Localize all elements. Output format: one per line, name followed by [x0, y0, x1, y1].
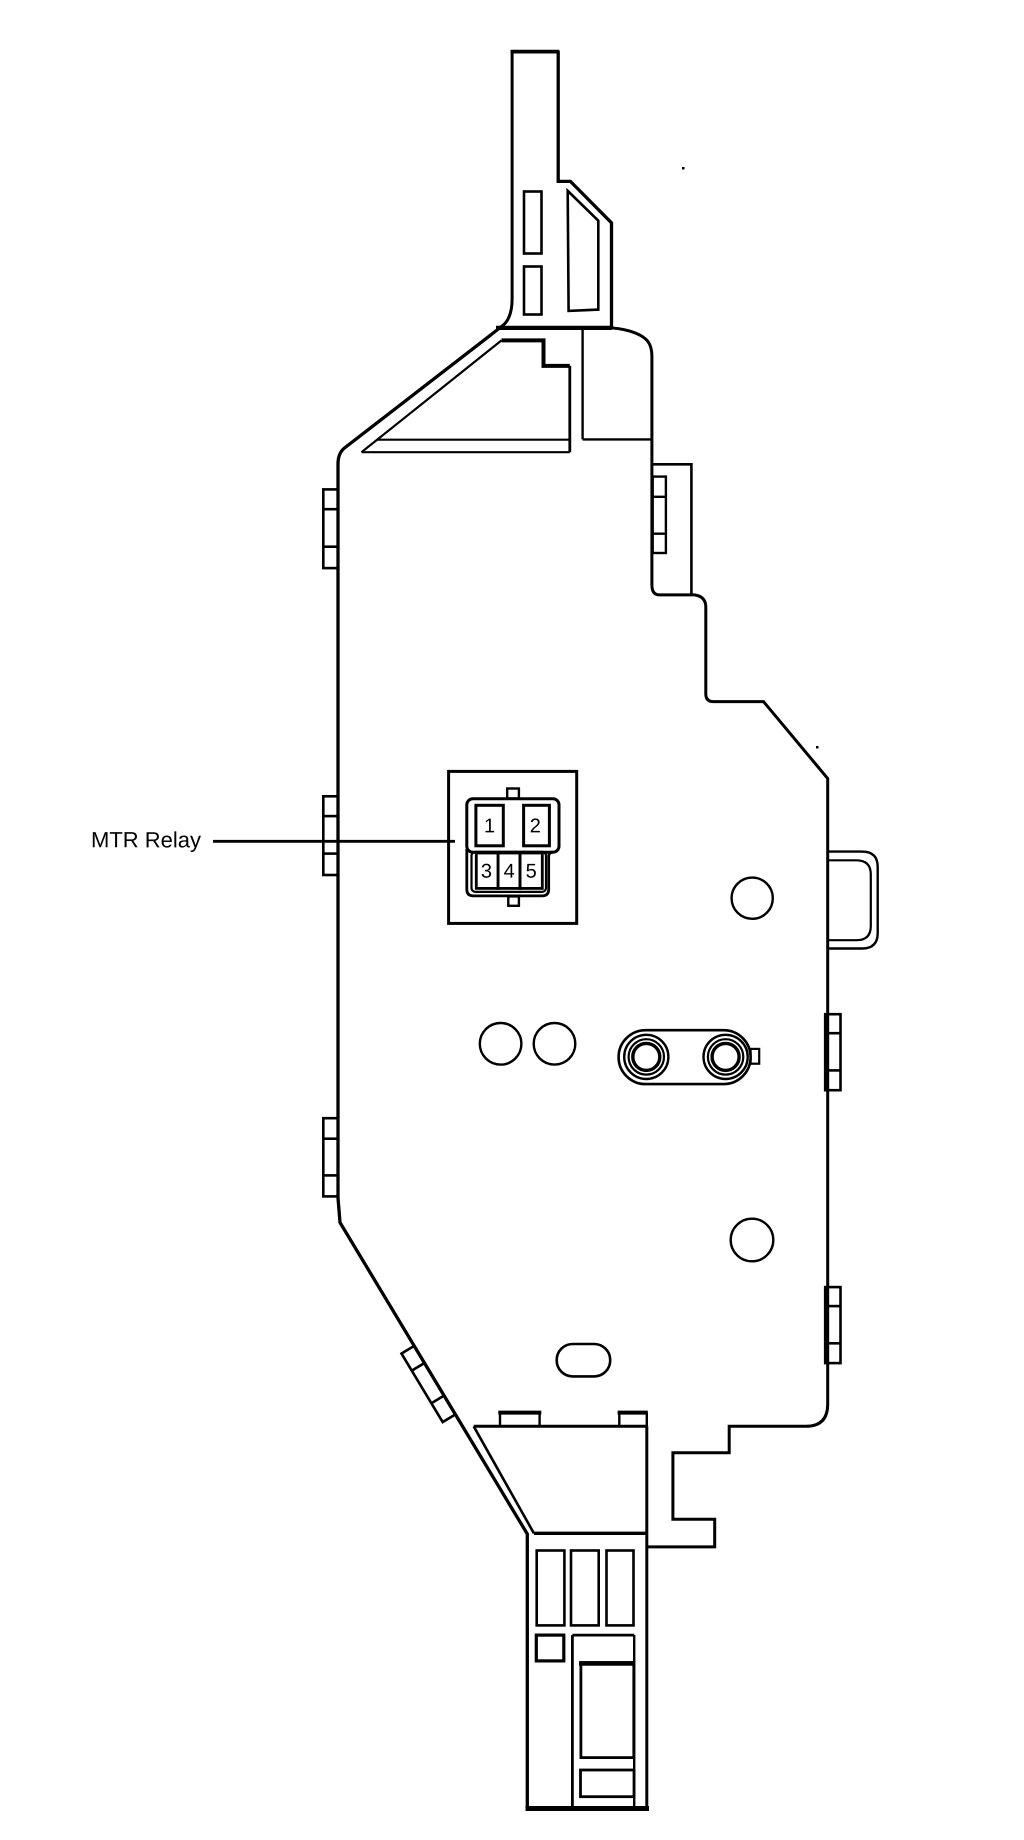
svg-text:2: 2	[530, 815, 541, 837]
svg-text:1: 1	[484, 815, 495, 837]
svg-text:5: 5	[526, 861, 537, 883]
svg-text:3: 3	[481, 861, 492, 883]
svg-text:MTR Relay: MTR Relay	[91, 827, 201, 852]
svg-text:4: 4	[504, 861, 515, 883]
